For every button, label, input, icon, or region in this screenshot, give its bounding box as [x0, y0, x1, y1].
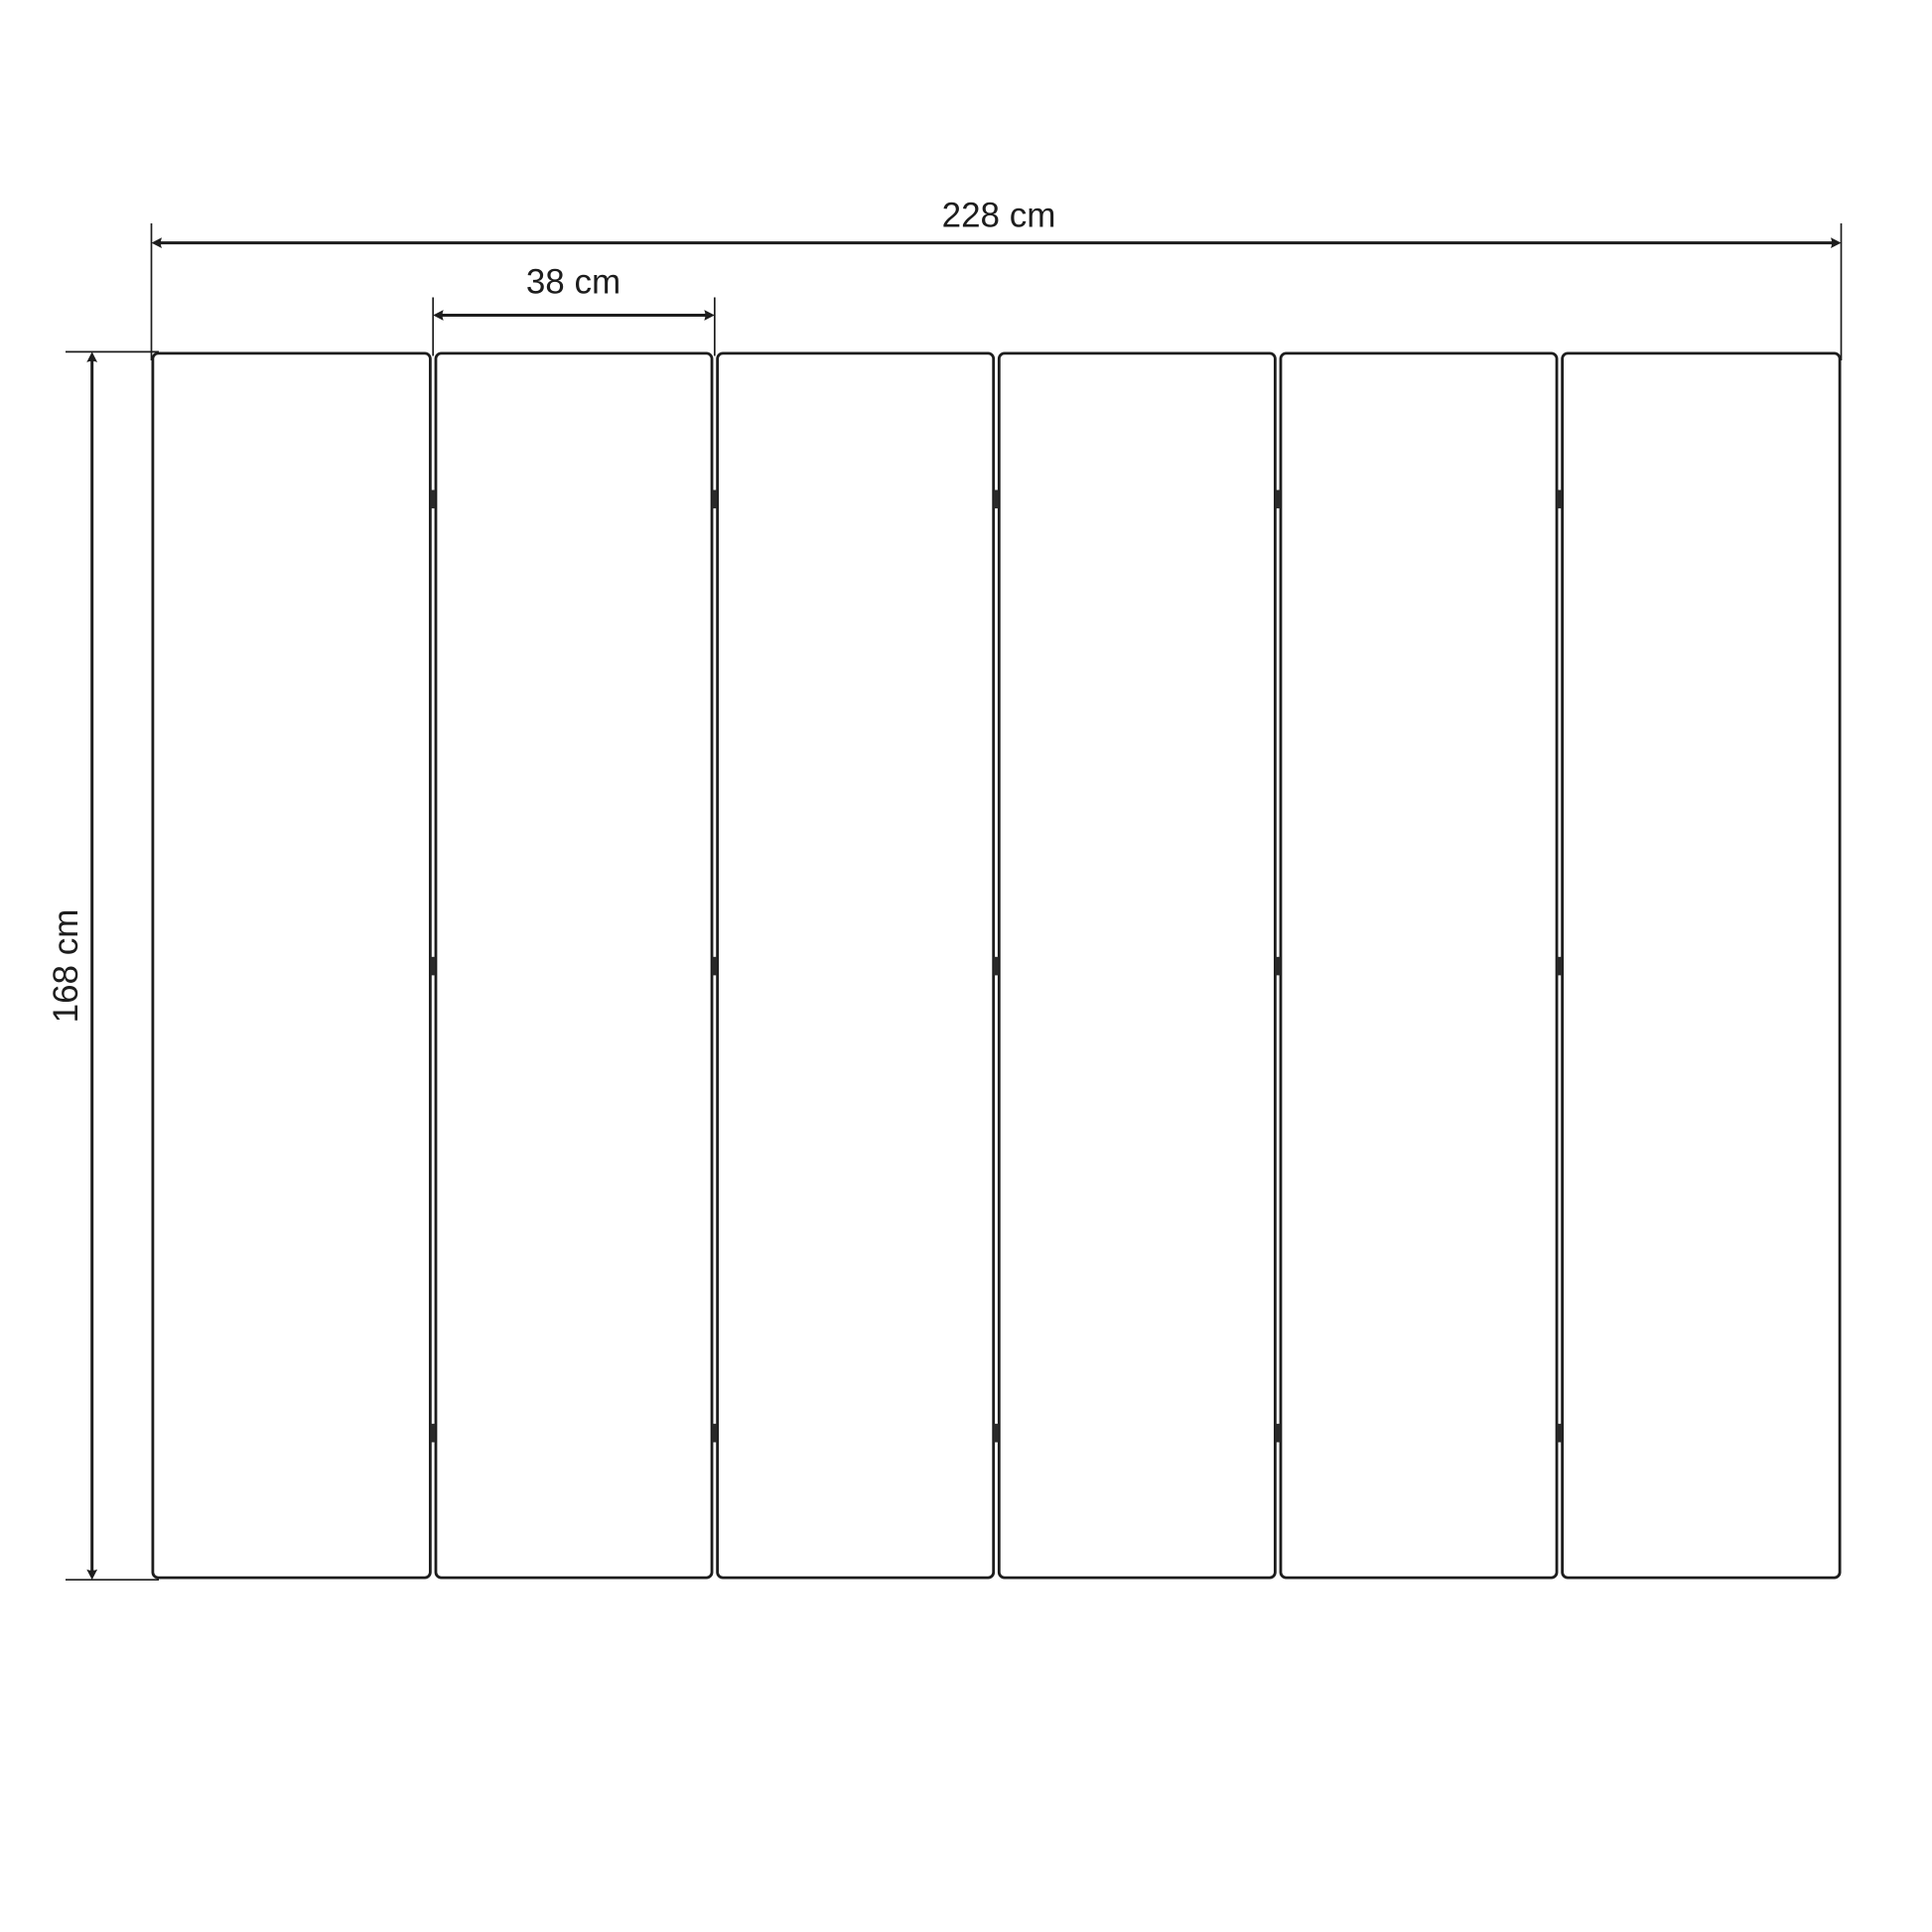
svg-text:38 cm: 38 cm	[526, 263, 621, 302]
svg-text:228 cm: 228 cm	[942, 197, 1056, 235]
svg-text:168 cm: 168 cm	[47, 909, 85, 1024]
